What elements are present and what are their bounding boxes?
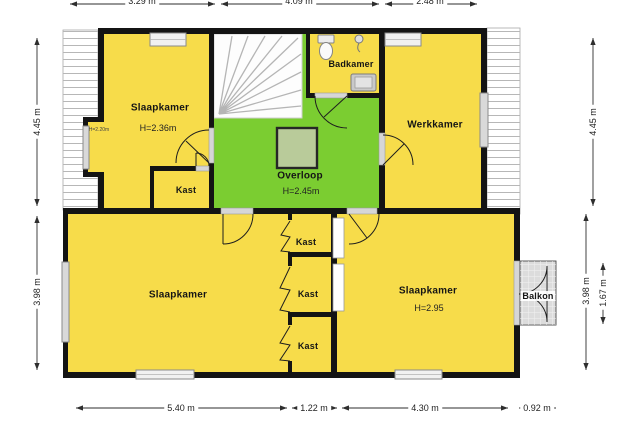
label-kast-3: Kast <box>298 341 318 351</box>
dim-right-1: 4.45 m <box>588 105 598 139</box>
dim-top-3: 2.48 m <box>413 0 447 6</box>
window-slaapkamer-bl-left <box>62 262 69 342</box>
label-overloop: Overloop <box>277 171 323 182</box>
overloop-void-square <box>277 128 317 168</box>
label-werkkamer: Werkkamer <box>407 120 463 131</box>
label-slaapkamer-tl-height: H=2.36m <box>140 123 177 133</box>
dim-right-2: 3.98 m <box>581 274 591 308</box>
roof-hatch-right <box>487 28 520 214</box>
dim-bottom-4: 0.92 m <box>520 403 554 413</box>
dim-top-2: 4.09 m <box>282 0 316 6</box>
dim-bottom-2: 1.22 m <box>297 403 331 413</box>
label-slaapkamer-tl: Slaapkamer <box>131 103 189 114</box>
dim-right-3: 1.67 m <box>598 276 608 310</box>
staircase <box>214 34 302 118</box>
dim-left-1: 4.45 m <box>32 105 42 139</box>
toilet-icon <box>318 35 334 60</box>
dim-left-2: 3.98 m <box>32 275 42 309</box>
wall-niches <box>333 218 344 311</box>
label-slaapkamer-br-height: H=2.95 <box>414 303 443 313</box>
label-slaapkamer-br: Slaapkamer <box>399 286 457 297</box>
dim-bottom-3: 4.30 m <box>408 403 442 413</box>
floor-plan-drawing <box>0 0 640 430</box>
washbasin-icon <box>351 74 376 91</box>
dim-top-1: 3.29 m <box>125 0 159 6</box>
label-kast-2: Kast <box>298 289 318 299</box>
label-knee-wall-height: H=2.20m <box>89 127 109 133</box>
dim-bottom-1: 5.40 m <box>164 403 198 413</box>
label-overloop-height: H=2.45m <box>283 186 320 196</box>
label-slaapkamer-bl: Slaapkamer <box>149 290 207 301</box>
window-werkkamer-right <box>480 93 488 147</box>
floor-plan: 3.29 m 4.09 m 2.48 m 5.40 m 1.22 m 4.30 … <box>0 0 640 430</box>
label-kast-hal: Kast <box>176 185 196 195</box>
label-balkon: Balkon <box>520 291 555 301</box>
label-badkamer: Badkamer <box>328 59 373 69</box>
label-kast-1: Kast <box>296 237 316 247</box>
